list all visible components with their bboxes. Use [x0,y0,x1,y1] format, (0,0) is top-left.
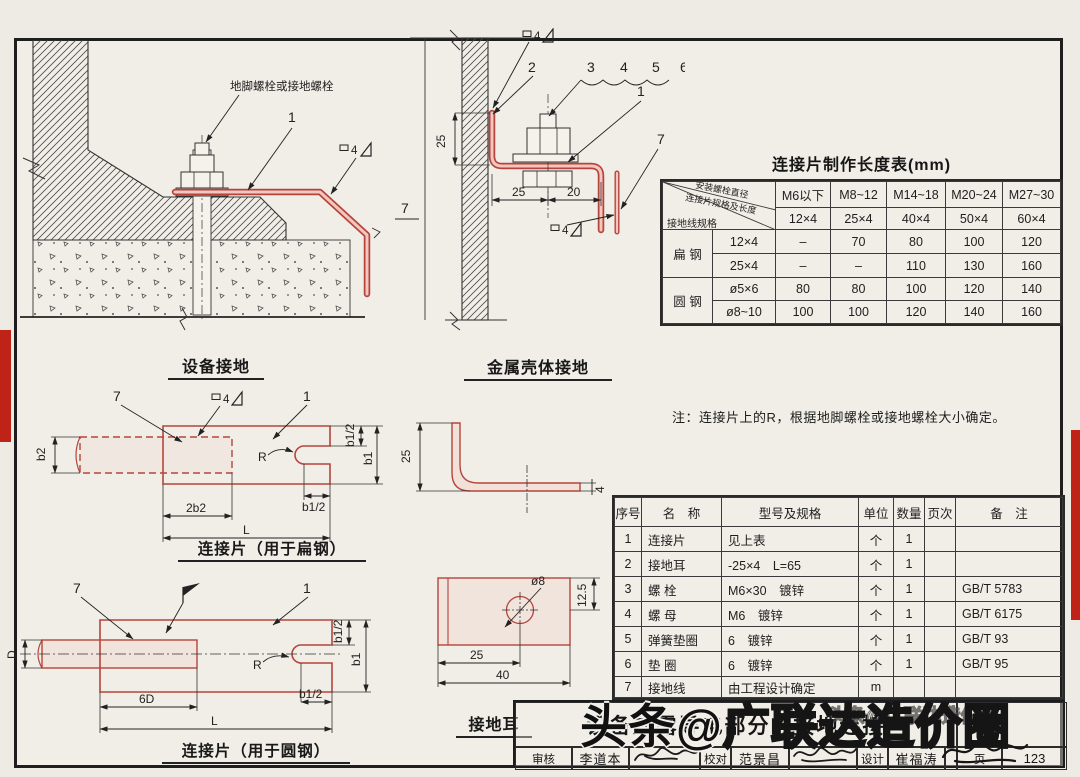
bom-qty: 1 [894,552,925,577]
bom-unit: m [859,677,894,698]
bom-unit: 个 [859,527,894,552]
table-row: 4 螺 母 M6 镀锌 个 1 GB/T 6175 [615,602,1063,627]
bom-page [925,527,956,552]
bom-name: 螺 栓 [642,577,722,602]
col-header: M20~24 [946,182,1003,208]
audit-label: 审核 [515,747,572,770]
col-header: M14~18 [887,182,946,208]
value: 140 [946,301,1003,324]
note-text: 注：连接片上的R，根据地脚螺栓或接地螺栓大小确定。 [672,407,1076,426]
dim-25-side: 25 [400,449,413,463]
length-table-title: 连接片制作长度表(mm) [660,151,1063,175]
bom-spec: M6×30 镀锌 [722,577,859,602]
bom-page [925,627,956,652]
row-spec: 25×4 [713,254,776,278]
bom-remark: GB/T 5783 [956,577,1063,602]
dim-D: D [5,650,19,659]
round-steel-connector-drawing: 7 1 R D 6D L b1/2 b1 [5,575,395,770]
bill-of-materials-table: 序号 名 称 型号及规格 单位 数量 页次 备 注 1 连接片 见上表 个 1 … [612,495,1065,700]
callout-4: 4 [620,59,628,75]
hatched-equipment-base [23,40,286,240]
callout-5: 5 [652,59,660,75]
dim-25-vertical: 25 [434,134,448,148]
length-table: 安装螺栓直径 连接片规格及长度 接地线规格 M6以下 M8~12 M14~18 … [660,179,1063,326]
table-row: 2 接地耳 -25×4 L=65 个 1 [615,552,1063,577]
bom-spec: -25×4 L=65 [722,552,859,577]
lug-side-view-red [452,423,580,513]
bom-spec: 6 镀锌 [722,652,859,677]
weld-symbol: 4 [331,143,371,194]
bom-remark: GB/T 95 [956,652,1063,677]
callout-3: 3 [587,59,595,75]
anchor-bolt-label: 地脚螺栓或接地螺栓 [230,79,334,93]
table-row: 1 连接片 见上表 个 1 [615,527,1063,552]
dim-b1: b1 [349,652,363,666]
bom-no: 1 [615,527,642,552]
dim-12-5: 12.5 [575,583,589,607]
weld-size: 4 [223,394,230,406]
callout-1: 1 [303,580,311,596]
dim-b1-2-bot: b1/2 [302,500,326,514]
bom-no: 3 [615,577,642,602]
spec-header: 50×4 [946,208,1003,230]
weld-symbol: 4 [198,392,242,436]
watermark-outline-part: 广联达造价圈 [723,700,1011,753]
dim-hole-dia: ø8 [531,574,545,588]
col-header: M6以下 [776,182,831,208]
bom-name: 连接片 [642,527,722,552]
dim-40: 40 [496,668,510,682]
bom-unit: 个 [859,652,894,677]
callout-6: 6 [680,59,685,75]
value: 120 [887,301,946,324]
weld-size: 4 [351,145,358,157]
bom-qty: 1 [894,577,925,602]
value: – [831,254,887,278]
equipment-grounding-detail-drawing: 地脚螺栓或接地螺栓 1 4 [20,40,400,380]
bom-page [925,677,956,698]
bom-header: 页次 [925,498,956,527]
lug-plan-view-red: ø8 [438,574,570,645]
watermark-solid-part: 头条@ [580,700,723,753]
dimensions: D 6D L b1/2 b1 b1/2 [5,619,371,733]
grounding-lug-drawing: ø8 25 4 12.5 25 40 [400,415,615,715]
bom-unit: 个 [859,577,894,602]
hatched-wall [410,30,535,330]
value: 120 [946,278,1003,301]
shell-grounding-detail-drawing: 2 3 4 5 6 1 7 7 4 4 [395,28,685,388]
bom-no: 4 [615,602,642,627]
bom-qty: 1 [894,527,925,552]
bom-qty: 1 [894,602,925,627]
bom-no: 6 [615,652,642,677]
bom-qty: 1 [894,652,925,677]
dim-b1: b1 [361,451,375,465]
value: 120 [1003,230,1061,254]
spec-header: 40×4 [887,208,946,230]
bom-header: 序号 [615,498,642,527]
callout-7: 7 [73,580,81,596]
value: – [776,254,831,278]
bom-spec: 由工程设计确定 [722,677,859,698]
weld-size: 4 [534,31,541,43]
bom-no: 2 [615,552,642,577]
bom-remark [956,527,1063,552]
flat-steel-dashed [76,437,232,473]
value: 110 [887,254,946,278]
callout-2: 2 [528,59,536,75]
value: 100 [887,278,946,301]
bom-unit: 个 [859,602,894,627]
callout-7: 7 [113,388,121,404]
dim-b2: b2 [34,447,48,461]
dim-b1-2-top: b1/2 [331,619,345,643]
field-weld-symbol [166,583,200,633]
bom-name: 弹簧垫圈 [642,627,722,652]
bom-qty [894,677,925,698]
bom-name: 螺 母 [642,602,722,627]
bom-spec: M6 镀锌 [722,602,859,627]
dim-25: 25 [512,185,526,199]
callout-1: 1 [288,109,296,125]
watermark: 头条@广联达造价圈 [580,699,1011,755]
dimensions: 25 4 12.5 25 40 [400,423,607,687]
dim-b1-2-top: b1/2 [343,423,357,447]
value: – [776,230,831,254]
bom-header: 数量 [894,498,925,527]
value: 80 [831,278,887,301]
bolt-assembly [513,94,578,218]
bom-header: 单位 [859,498,894,527]
value: 160 [1003,254,1061,278]
spec-header: 25×4 [831,208,887,230]
bom-name: 接地耳 [642,552,722,577]
bom-page [925,552,956,577]
bom-remark [956,552,1063,577]
flat-steel-connector-drawing: 7 4 1 R b2 2b2 L b1/2 [15,385,400,560]
bom-name: 接地线 [642,677,722,698]
value: 100 [776,301,831,324]
row-spec: ø8~10 [713,301,776,324]
col-header: M27~30 [1003,182,1061,208]
side-callout-7: 7 [401,200,409,216]
concrete-foundation [20,240,365,330]
scanned-drawing-page: 地脚螺栓或接地螺栓 1 4 设备接地 [0,0,1080,777]
table-row: 5 弹簧垫圈 6 镀锌 个 1 GB/T 93 [615,627,1063,652]
table-row: 7 接地线 由工程设计确定 m [615,677,1063,698]
bom-no: 7 [615,677,642,698]
weld-size: 4 [562,225,569,237]
weld-symbol-top: 4 [493,29,553,108]
value: 100 [831,301,887,324]
bom-name: 垫 圈 [642,652,722,677]
bom-unit: 个 [859,552,894,577]
bom-header: 型号及规格 [722,498,859,527]
left-edge-red-strip [0,330,11,442]
callout-7: 7 [657,131,665,147]
row-spec: 12×4 [713,230,776,254]
value: 140 [1003,278,1061,301]
weld-symbol-bottom: 4 [551,215,614,237]
value: 100 [946,230,1003,254]
labels: 地脚螺栓或接地螺栓 1 4 [206,79,371,194]
row-spec: ø5×6 [713,278,776,301]
bom-unit: 个 [859,627,894,652]
dim-thickness-4: 4 [593,486,607,493]
spec-header: 60×4 [1003,208,1061,230]
bom-header: 名 称 [642,498,722,527]
dim-20: 20 [567,185,581,199]
table-row: 3 螺 栓 M6×30 镀锌 个 1 GB/T 5783 [615,577,1063,602]
value: 130 [946,254,1003,278]
dim-R: R [253,658,262,672]
spec-header: 12×4 [776,208,831,230]
bom-no: 5 [615,627,642,652]
bom-spec: 见上表 [722,527,859,552]
right-edge-red-strip [1071,430,1080,620]
bom-remark [956,677,1063,698]
bom-remark: GB/T 6175 [956,602,1063,627]
value: 80 [776,278,831,301]
dim-25-plan: 25 [470,648,484,662]
callout-1: 1 [637,83,645,99]
value: 80 [887,230,946,254]
bom-page [925,652,956,677]
dim-b1-2-bot: b1/2 [299,687,323,701]
bom-page [925,602,956,627]
dim-R: R [258,450,267,464]
dim-2b2: 2b2 [186,501,206,515]
bom-spec: 6 镀锌 [722,627,859,652]
bom-header: 备 注 [956,498,1063,527]
value: 160 [1003,301,1061,324]
bom-page [925,577,956,602]
table-row: 6 垫 圈 6 镀锌 个 1 GB/T 95 [615,652,1063,677]
bom-remark: GB/T 93 [956,627,1063,652]
dim-6D: 6D [139,692,155,706]
callout-1: 1 [303,388,311,404]
dim-L: L [243,523,250,537]
col-header: M8~12 [831,182,887,208]
value: 70 [831,230,887,254]
bom-qty: 1 [894,627,925,652]
dim-L: L [211,714,218,728]
